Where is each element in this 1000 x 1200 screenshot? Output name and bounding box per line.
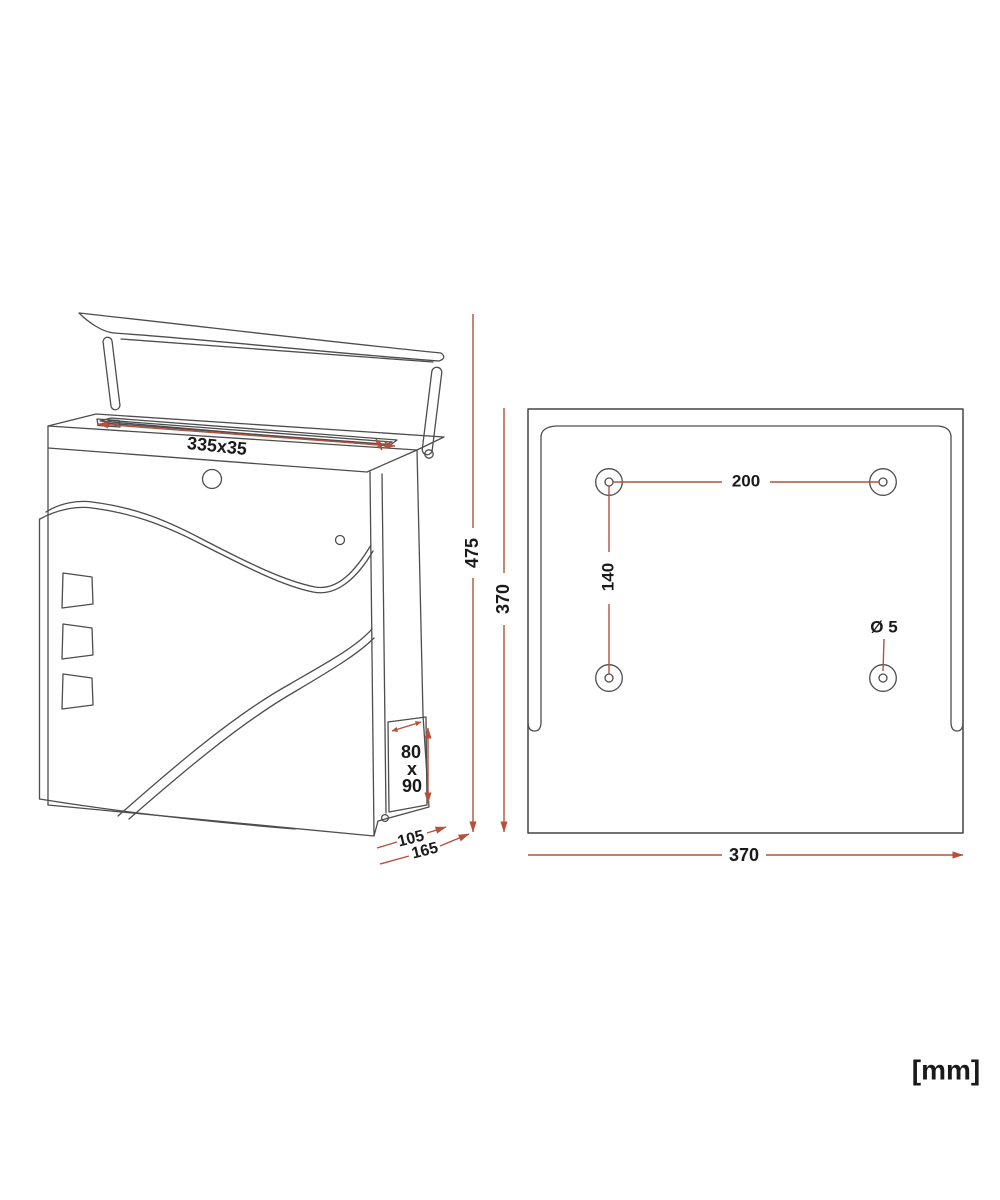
plate-width-label: 370 [729,845,759,865]
units-label: [mm] [912,1055,980,1086]
back-plate-rail-left [528,436,541,731]
hole-diameter-label: Ø 5 [870,618,897,637]
window-2 [62,624,93,659]
dimension-labels: 335x35 80 x 90 105 165 475 370 200 140 Ø… [186,433,898,865]
hole-spacing-vertical-label: 140 [599,563,618,591]
dim-line-door-width [392,722,421,731]
box-body-outline [48,426,429,836]
lid-hinge-left-arm [103,337,121,411]
lid-hinge-right-arm [422,367,443,458]
back-plate-top-lip [541,426,951,436]
body-height-label: 370 [493,584,513,614]
key-hole [336,536,345,545]
door-height-label: 90 [402,776,422,796]
front-panel-wave-upper [40,501,373,592]
hole-spacing-horizontal-label: 200 [732,472,760,491]
back-plate-rail-right [951,436,963,731]
mailbox-lid [79,313,444,361]
window-1 [62,573,93,608]
overall-height-label: 475 [462,538,482,568]
diagram-canvas: 335x35 80 x 90 105 165 475 370 200 140 Ø… [0,0,1000,1200]
slot-size-label: 335x35 [186,433,248,459]
mailbox-perspective-view [40,313,445,836]
lock-hole [203,470,222,489]
dim-line-hole-diameter [883,639,884,671]
dimension-lines [98,314,963,864]
window-3 [62,674,93,709]
ventilation-windows [62,573,93,709]
technical-drawing: 335x35 80 x 90 105 165 475 370 200 140 Ø… [0,0,1000,1200]
front-panel-wave-lower [118,629,374,819]
mailbox-lid-crease [121,339,433,362]
